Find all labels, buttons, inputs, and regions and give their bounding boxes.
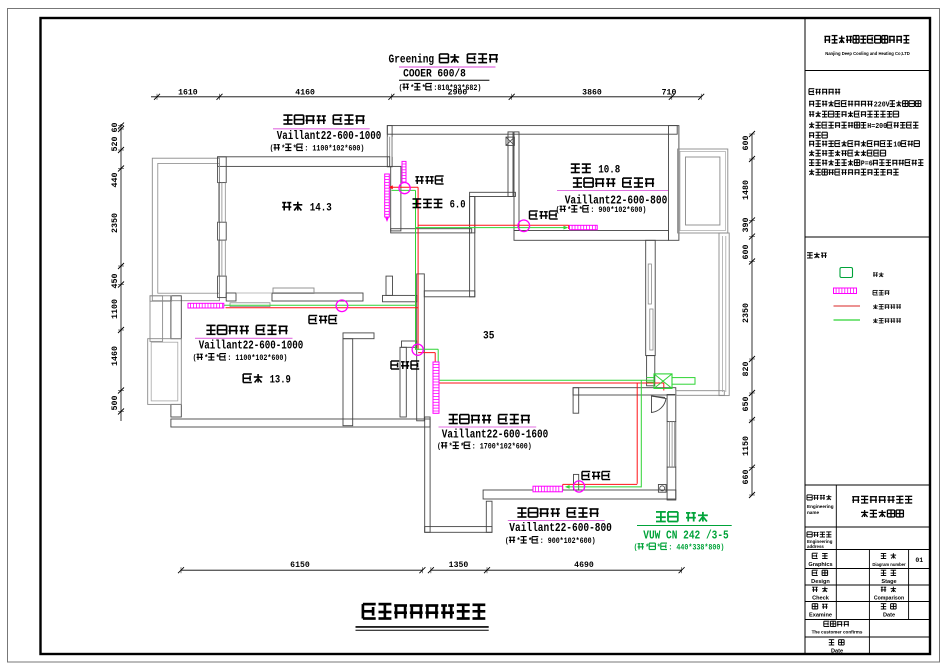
svg-text:Stage: Stage bbox=[881, 579, 896, 585]
svg-text:2900: 2900 bbox=[448, 89, 468, 98]
svg-text:(: ( bbox=[556, 206, 560, 215]
svg-text:VUW CN 242 /3-5: VUW CN 242 /3-5 bbox=[643, 530, 729, 543]
svg-text:Comparison: Comparison bbox=[874, 596, 904, 602]
svg-text:600: 600 bbox=[742, 244, 751, 259]
svg-text:*: * bbox=[579, 206, 583, 215]
svg-text:1350: 1350 bbox=[449, 561, 469, 570]
svg-text:Examine: Examine bbox=[809, 613, 832, 619]
svg-text:(: ( bbox=[399, 84, 403, 93]
svg-text:Vaillant22-600-1600: Vaillant22-600-1600 bbox=[442, 429, 548, 442]
svg-text:4160: 4160 bbox=[295, 89, 315, 98]
svg-text:1150: 1150 bbox=[742, 436, 751, 456]
svg-text:Nanjing Deep Cooling and Heati: Nanjing Deep Cooling and Heating Co;LTD bbox=[825, 51, 910, 56]
svg-text:(: ( bbox=[270, 145, 274, 154]
svg-text:Vaillant22-600-800: Vaillant22-600-800 bbox=[509, 522, 612, 535]
svg-text:*: * bbox=[657, 544, 661, 553]
svg-text:Design: Design bbox=[811, 579, 830, 585]
svg-text:(: ( bbox=[634, 544, 638, 553]
svg-text:*: * bbox=[410, 84, 414, 93]
svg-text:*: * bbox=[216, 354, 220, 363]
svg-text:COOER 600/8: COOER 600/8 bbox=[403, 69, 466, 81]
svg-text:address: address bbox=[807, 544, 824, 549]
svg-text:*: * bbox=[422, 84, 426, 93]
svg-text:: 900*102*600): : 900*102*600) bbox=[590, 206, 646, 215]
svg-text:660: 660 bbox=[742, 469, 751, 484]
svg-text:220V: 220V bbox=[874, 102, 890, 110]
svg-text:*: * bbox=[645, 544, 649, 553]
svg-text:820: 820 bbox=[742, 361, 751, 376]
svg-text:(: ( bbox=[505, 537, 509, 546]
svg-text:: 1100*102*600): : 1100*102*600) bbox=[227, 354, 287, 363]
svg-text:Engineering: Engineering bbox=[807, 504, 834, 509]
svg-text:: 1700*102*600): : 1700*102*600) bbox=[472, 443, 532, 452]
svg-text:: 1100*102*600): : 1100*102*600) bbox=[304, 145, 364, 154]
svg-text:Diagram number: Diagram number bbox=[872, 562, 906, 567]
svg-text:*: * bbox=[449, 443, 453, 452]
svg-text:(: ( bbox=[193, 354, 197, 363]
svg-text:14.3: 14.3 bbox=[310, 203, 332, 215]
svg-text:P=6: P=6 bbox=[861, 161, 873, 169]
svg-text:01: 01 bbox=[915, 557, 923, 564]
svg-text:Date: Date bbox=[883, 613, 895, 619]
svg-text:10.8: 10.8 bbox=[598, 165, 620, 177]
svg-text:1480: 1480 bbox=[742, 180, 751, 200]
svg-text:*: * bbox=[517, 537, 521, 546]
svg-text:Check: Check bbox=[812, 596, 830, 602]
svg-text:name: name bbox=[807, 510, 819, 515]
svg-text:: 440*338*800): : 440*338*800) bbox=[668, 544, 724, 553]
svg-text:Date: Date bbox=[831, 649, 843, 655]
svg-text:520: 520 bbox=[111, 136, 120, 151]
svg-text:6.0: 6.0 bbox=[450, 200, 466, 212]
svg-text:650: 650 bbox=[742, 396, 751, 411]
svg-text:(: ( bbox=[437, 443, 441, 452]
svg-text:35: 35 bbox=[483, 331, 495, 343]
svg-text:: 900*102*600): : 900*102*600) bbox=[540, 537, 596, 546]
svg-text:H=200: H=200 bbox=[867, 123, 887, 131]
svg-text:*: * bbox=[567, 206, 571, 215]
svg-text:The customer confirms: The customer confirms bbox=[812, 630, 863, 635]
svg-text:*: * bbox=[293, 145, 297, 154]
svg-text:*: * bbox=[528, 537, 532, 546]
svg-text:2350: 2350 bbox=[742, 303, 751, 323]
svg-text:Vaillant22-600-1000: Vaillant22-600-1000 bbox=[277, 130, 382, 143]
svg-text:Greening: Greening bbox=[389, 54, 435, 67]
svg-text:*: * bbox=[281, 145, 285, 154]
svg-text:1100: 1100 bbox=[111, 299, 120, 319]
svg-text:*: * bbox=[204, 354, 208, 363]
svg-text:390: 390 bbox=[742, 217, 751, 232]
svg-text:10: 10 bbox=[893, 142, 901, 150]
svg-text:4690: 4690 bbox=[574, 561, 594, 570]
svg-text:3860: 3860 bbox=[582, 89, 602, 98]
svg-text:2350: 2350 bbox=[111, 213, 120, 233]
svg-text:Graphics: Graphics bbox=[808, 562, 832, 568]
svg-text:1610: 1610 bbox=[178, 89, 198, 98]
svg-text:1460: 1460 bbox=[111, 346, 120, 366]
svg-text:13.9: 13.9 bbox=[270, 375, 291, 387]
svg-text:*: * bbox=[460, 443, 464, 452]
svg-text:710: 710 bbox=[662, 89, 677, 98]
svg-text:600: 600 bbox=[742, 135, 751, 150]
svg-text:6150: 6150 bbox=[290, 561, 310, 570]
svg-text:450: 450 bbox=[111, 273, 120, 288]
svg-text:500: 500 bbox=[111, 395, 120, 410]
svg-text:Vaillant22-600-1000: Vaillant22-600-1000 bbox=[199, 340, 304, 353]
svg-text:440: 440 bbox=[111, 172, 120, 187]
svg-text:60: 60 bbox=[111, 122, 120, 132]
